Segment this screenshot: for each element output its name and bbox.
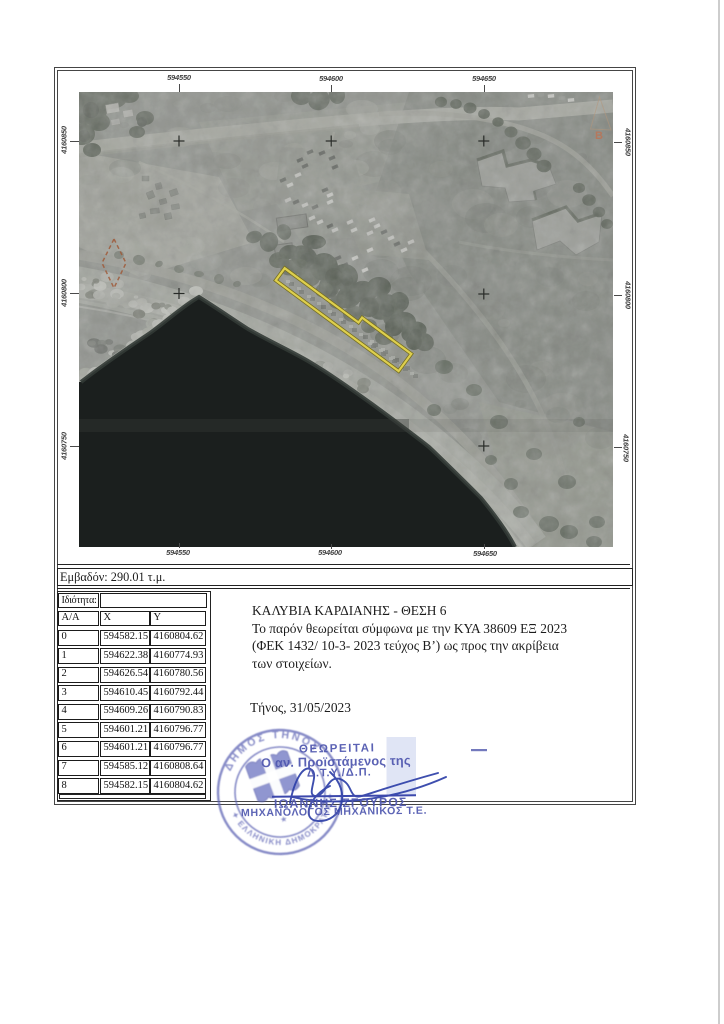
svg-text:B: B bbox=[595, 130, 603, 142]
